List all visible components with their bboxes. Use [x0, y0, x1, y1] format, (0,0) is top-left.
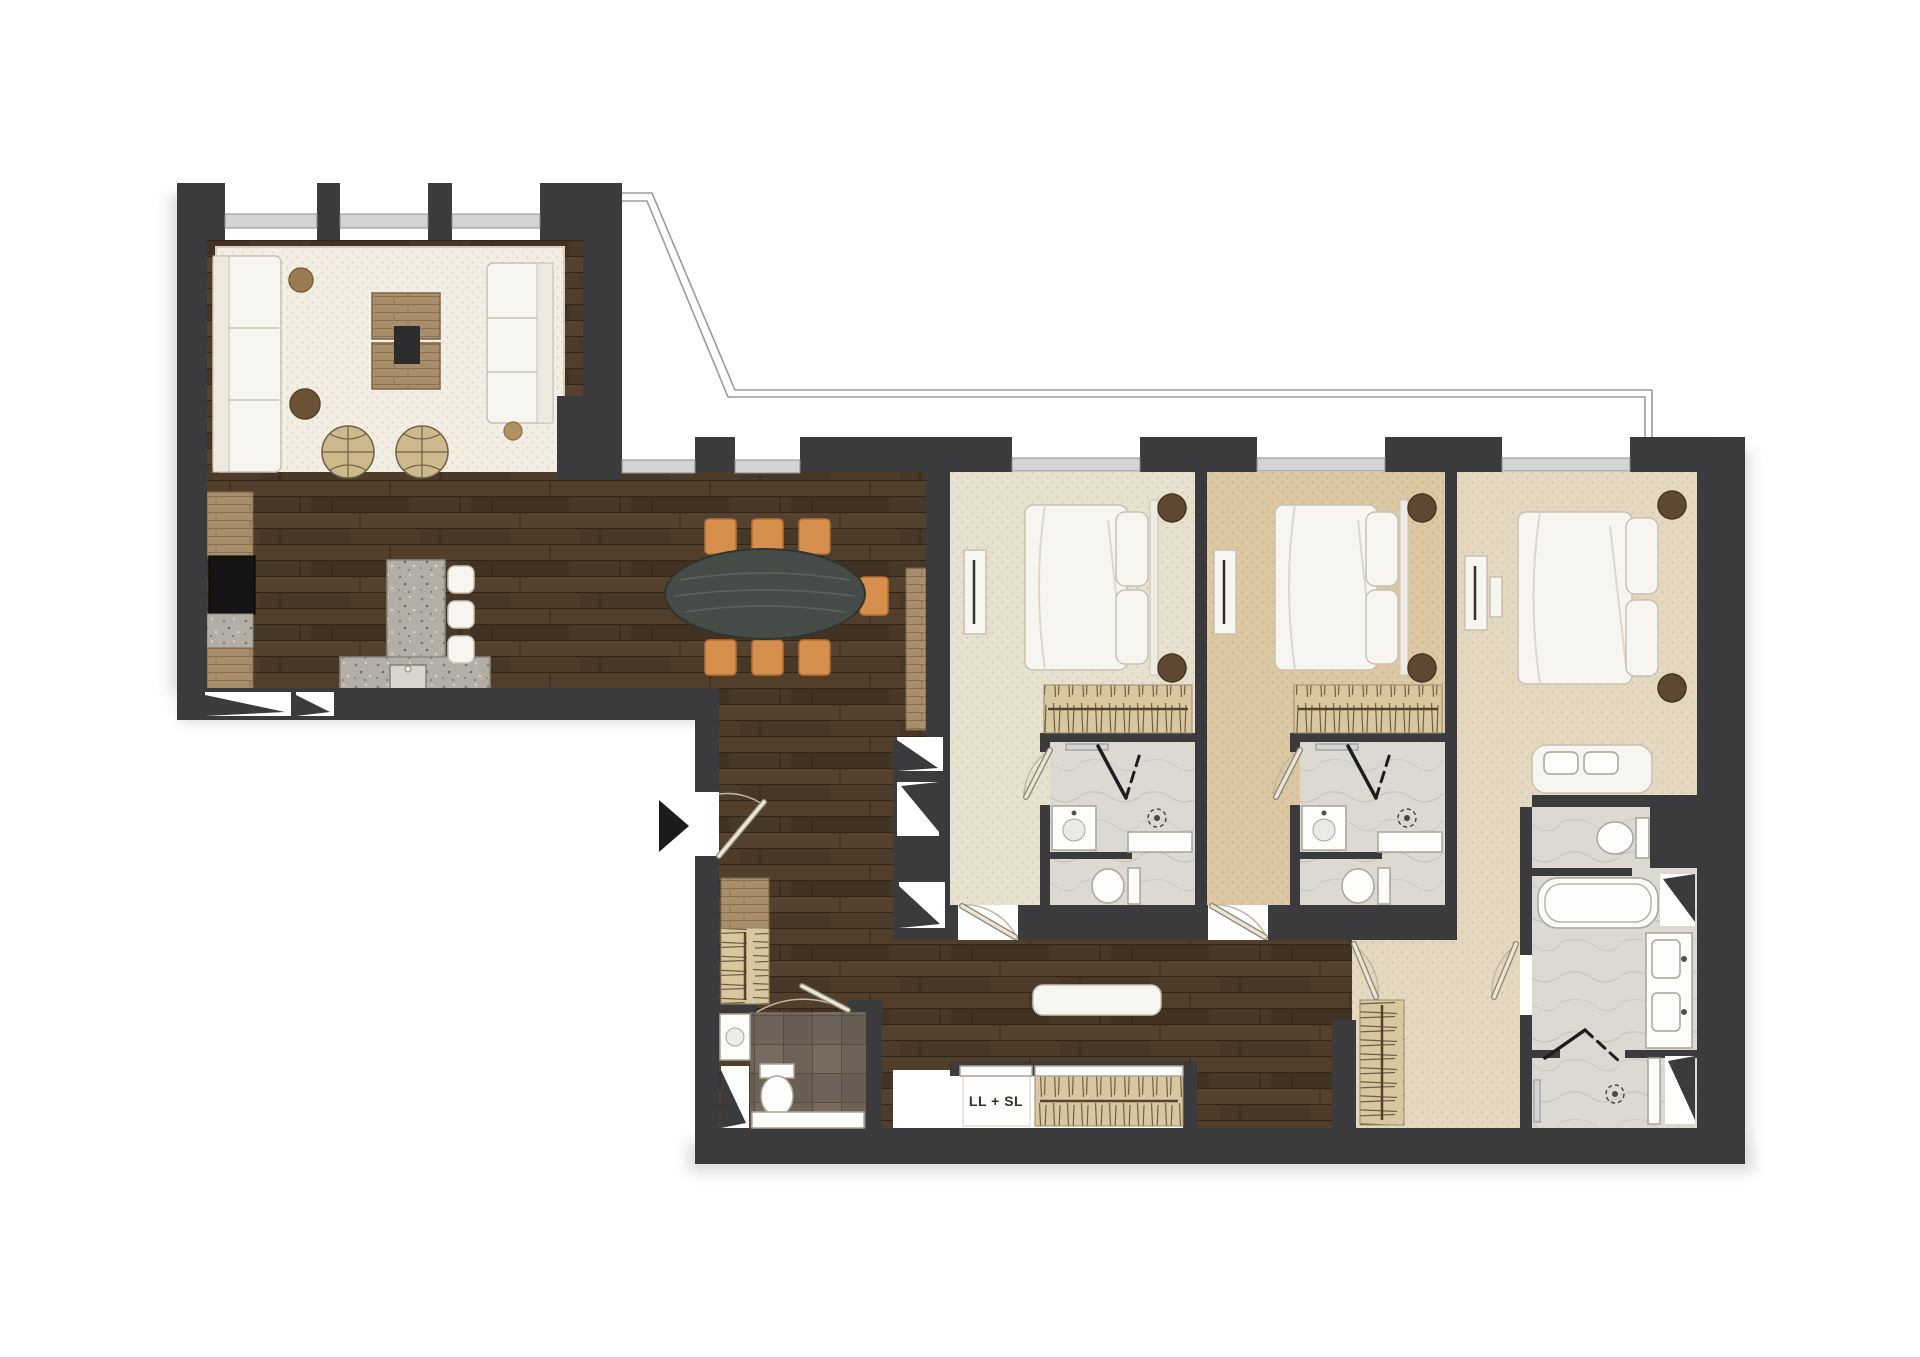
nightstand: [1408, 494, 1436, 522]
master-toilet: [1597, 818, 1649, 858]
dining-sideboard: [906, 568, 926, 730]
powder-toilet: [760, 1064, 794, 1116]
window-sill: [622, 460, 695, 473]
closet-1: [1044, 685, 1192, 733]
floor-plan-drawing: LL + SL: [0, 0, 1920, 1357]
vanity-counter: [1378, 832, 1442, 852]
dressing-closet: [1360, 1000, 1404, 1125]
vanity-counter: [1128, 832, 1192, 852]
nightstand: [1158, 654, 1186, 682]
corridor-lower-floor: [1197, 1070, 1345, 1128]
shaft-icon: [721, 1066, 749, 1128]
sofa-left: [213, 256, 281, 472]
pouf-left: [322, 426, 374, 478]
bedroom-2-door: [1210, 905, 1266, 937]
kitchen-cabinet-upper: [207, 492, 253, 556]
dresser: [964, 550, 986, 634]
window-sill: [452, 214, 540, 228]
side-table-dark: [290, 389, 320, 419]
shaft-icon: [899, 882, 945, 928]
powder-sink: [720, 1014, 750, 1060]
nightstand: [1658, 674, 1686, 702]
master-bench: [1532, 745, 1652, 793]
vent-icon: [205, 692, 291, 716]
vent-icon: [296, 692, 334, 716]
floor-plan: LL + SL: [0, 0, 1920, 1357]
shower-bar: [1316, 744, 1358, 750]
shaft-icon: [897, 737, 943, 771]
coat-closet: [721, 878, 769, 1004]
window-sill: [735, 460, 800, 473]
island-stools: [448, 566, 474, 663]
laundry-closet: LL + SL: [960, 1066, 1032, 1126]
pouf-right: [396, 426, 448, 478]
sofa-right: [487, 263, 553, 423]
shaft-icon: [897, 782, 939, 836]
window-sill: [1502, 458, 1630, 471]
master-passage-carpet: [1457, 807, 1520, 940]
window-sill: [1012, 458, 1140, 471]
shaft-icon: [1665, 1056, 1695, 1124]
nightstand: [1408, 654, 1436, 682]
corridor-bench: [1033, 985, 1161, 1015]
bathroom-sink: [1302, 806, 1346, 850]
bedroom-1-door: [960, 905, 1016, 937]
nightstand: [1658, 491, 1686, 519]
kitchen-counter-granite: [207, 614, 253, 648]
closet-2: [1294, 685, 1442, 733]
dining-table: [665, 549, 865, 639]
laundry-label: LL + SL: [969, 1093, 1023, 1109]
hall-gap-floor: [893, 940, 950, 1070]
window-sill: [340, 214, 428, 228]
range-cooktop: [209, 556, 255, 614]
double-vanity: [1646, 933, 1692, 1048]
toilet: [1092, 868, 1140, 904]
nightstand: [1158, 494, 1186, 522]
toilet: [1342, 868, 1390, 904]
window-sill: [225, 214, 317, 228]
window-sill: [1257, 458, 1385, 471]
terrace-outline: [622, 193, 1652, 437]
bathroom-sink: [1052, 806, 1096, 850]
bathtub: [1538, 878, 1658, 928]
powder-counter: [752, 1112, 864, 1128]
shower-bar: [1066, 744, 1108, 750]
side-table-right: [504, 422, 522, 440]
entry-arrow-icon: [659, 800, 689, 852]
side-table-small: [289, 268, 313, 292]
sink-faucet: [405, 666, 411, 672]
dresser: [1214, 550, 1236, 634]
hall-wardrobe: [1035, 1066, 1183, 1126]
kitchen-cabinet-lower: [207, 648, 253, 690]
shaft-icon: [1660, 874, 1695, 926]
